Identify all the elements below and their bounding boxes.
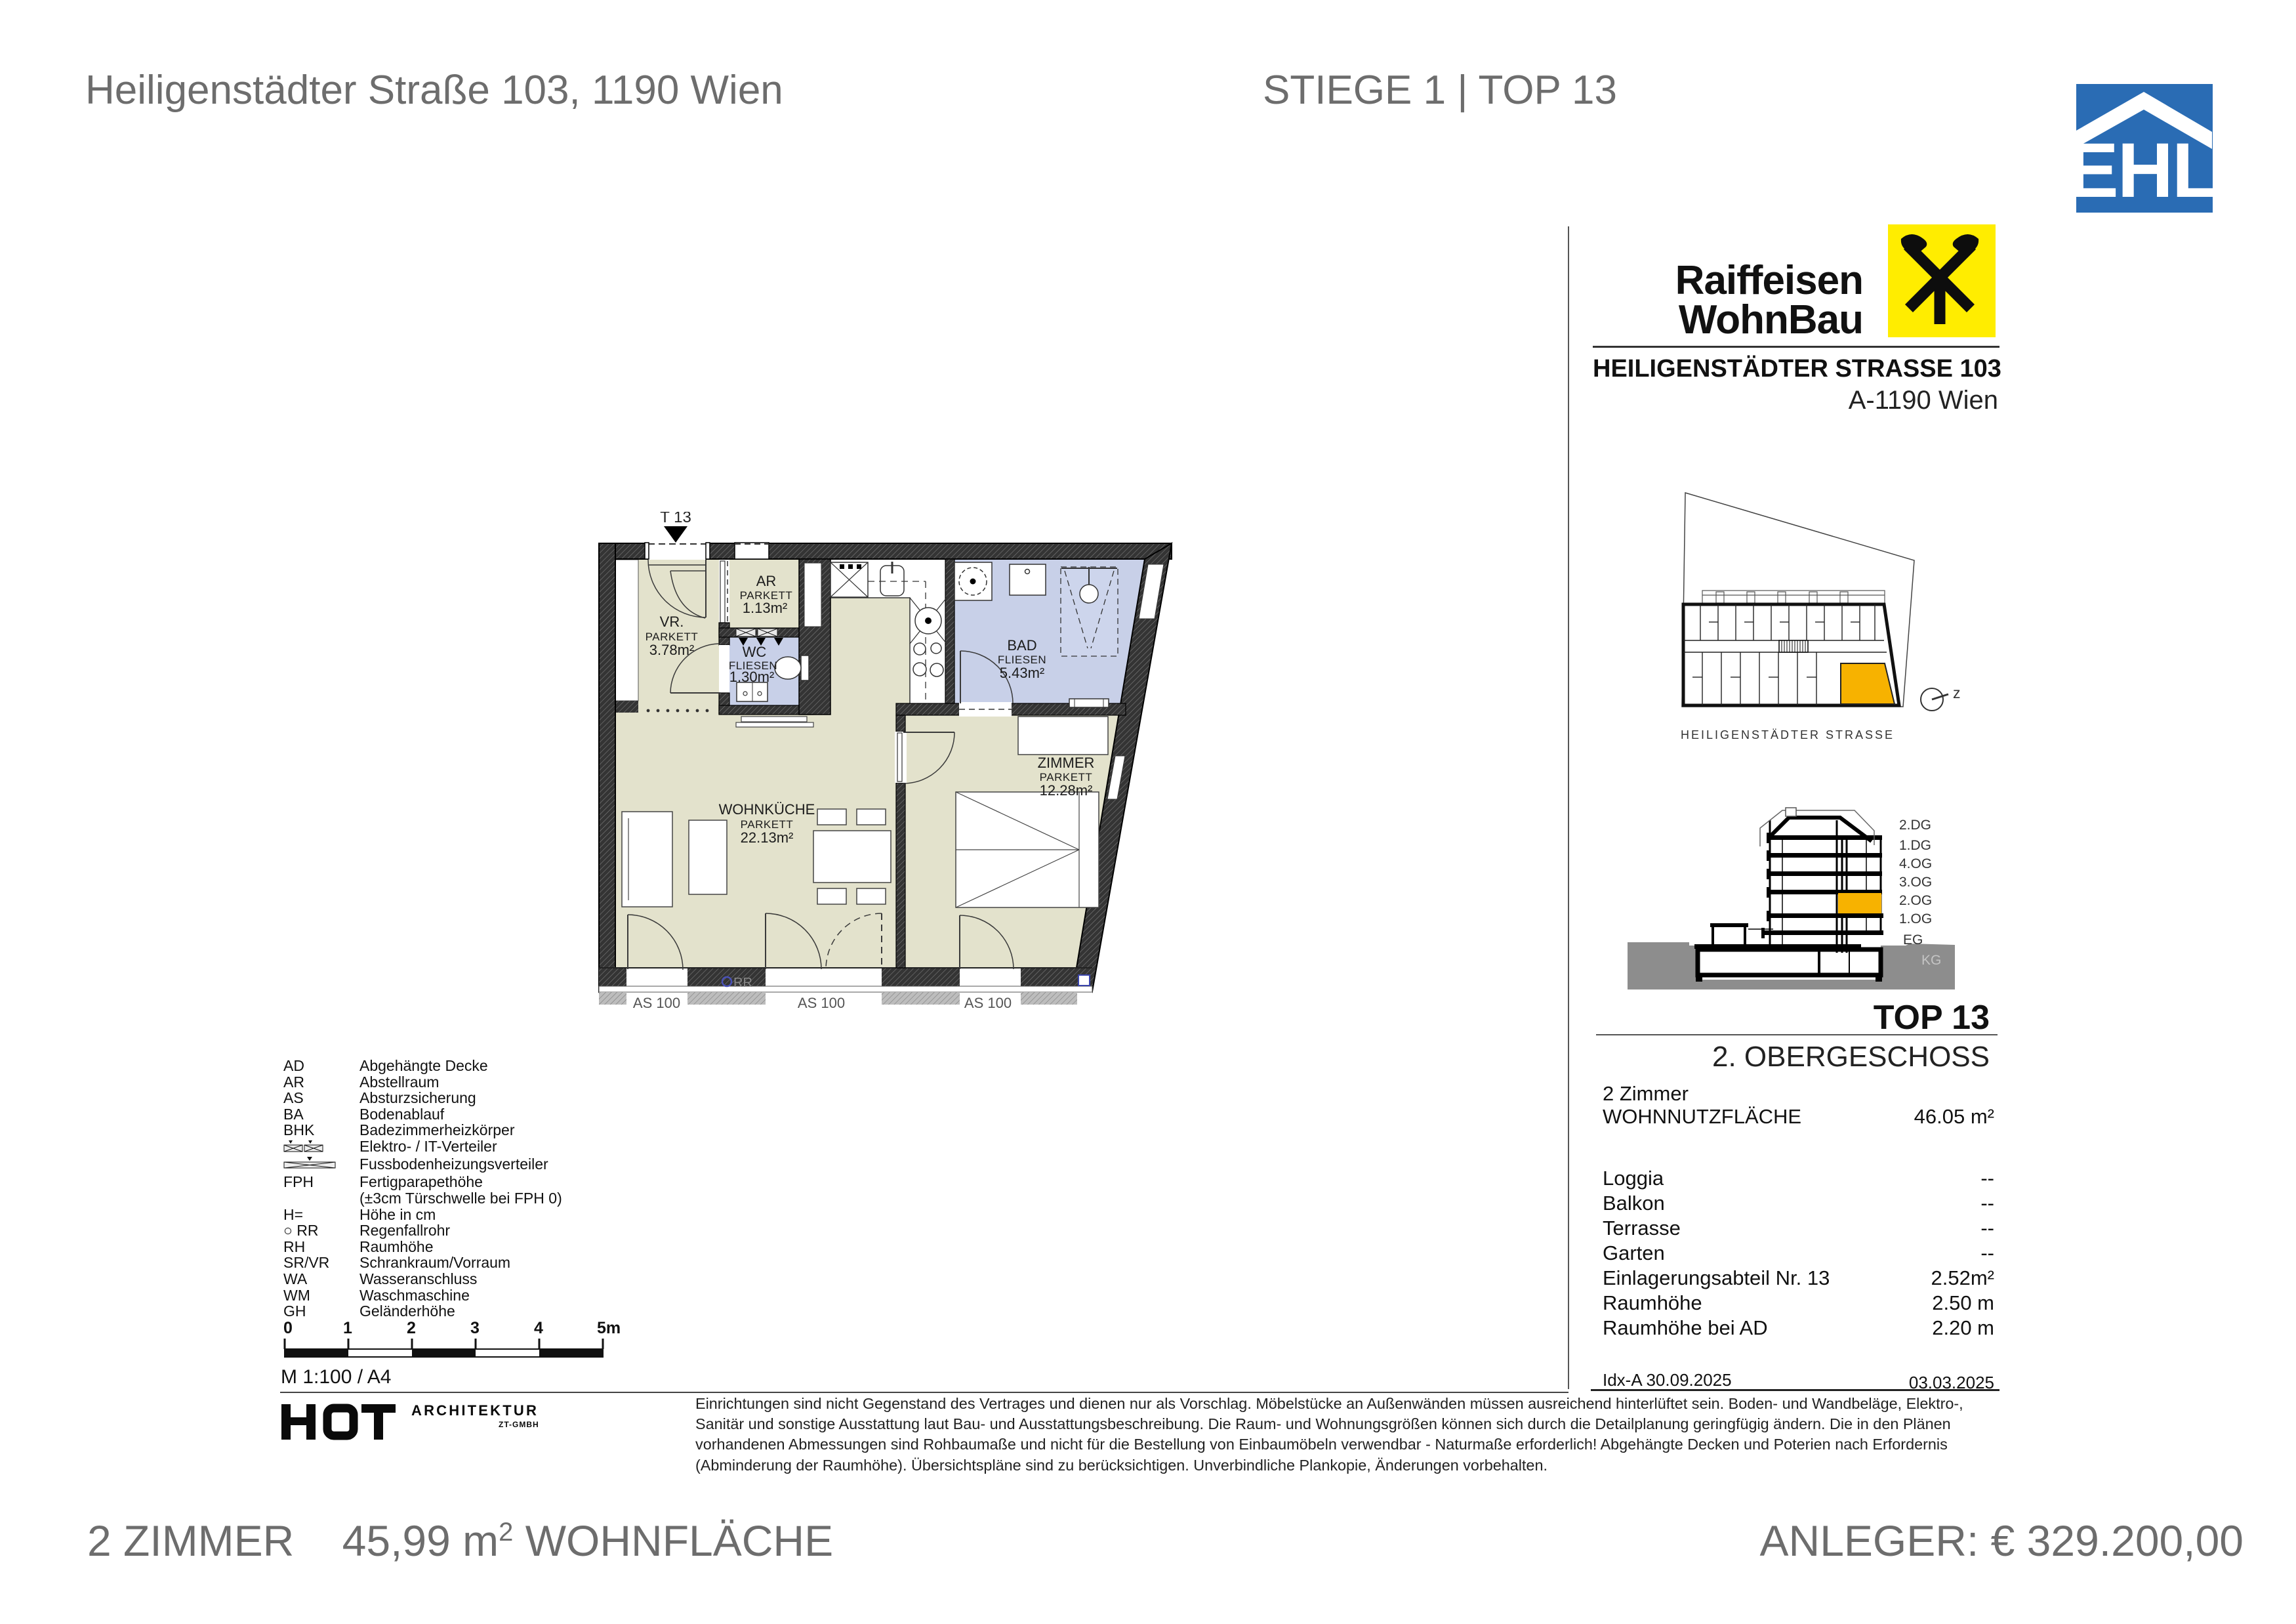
svg-text:BAD: BAD bbox=[1007, 637, 1036, 654]
svg-text:ZT-GMBH: ZT-GMBH bbox=[499, 1420, 539, 1429]
svg-text:AS 100: AS 100 bbox=[633, 995, 680, 1011]
svg-text:12.28m²: 12.28m² bbox=[1040, 782, 1093, 799]
svg-text:2.OG: 2.OG bbox=[1899, 893, 1932, 908]
svg-text:HEILIGENSTÄDTER STRASSE: HEILIGENSTÄDTER STRASSE bbox=[1681, 728, 1895, 741]
svg-text:z: z bbox=[1953, 684, 1961, 701]
svg-text:5.43m²: 5.43m² bbox=[1000, 665, 1044, 681]
svg-text:KG: KG bbox=[1921, 953, 1941, 968]
svg-text:WOHNKÜCHE: WOHNKÜCHE bbox=[719, 801, 815, 818]
svg-text:ZIMMER: ZIMMER bbox=[1038, 755, 1095, 771]
svg-text:3.OG: 3.OG bbox=[1899, 875, 1932, 890]
svg-text:4.OG: 4.OG bbox=[1899, 856, 1932, 871]
svg-text:AS 100: AS 100 bbox=[798, 995, 845, 1011]
svg-text:1.30m²: 1.30m² bbox=[729, 669, 774, 685]
svg-text:ARCHITEKTUR: ARCHITEKTUR bbox=[411, 1403, 539, 1419]
svg-text:22.13m²: 22.13m² bbox=[741, 829, 794, 846]
svg-text:1.DG: 1.DG bbox=[1899, 838, 1931, 853]
svg-text:AS 100: AS 100 bbox=[964, 995, 1012, 1011]
svg-text:1.13m²: 1.13m² bbox=[743, 600, 787, 616]
svg-text:2.DG: 2.DG bbox=[1899, 818, 1931, 833]
svg-text:0: 0 bbox=[283, 1320, 293, 1337]
svg-text:1: 1 bbox=[343, 1320, 352, 1337]
svg-text:1.OG: 1.OG bbox=[1899, 911, 1932, 927]
svg-text:AR: AR bbox=[756, 573, 777, 589]
svg-text:RR: RR bbox=[733, 976, 752, 990]
svg-text:EHL: EHL bbox=[2076, 127, 2213, 213]
svg-text:3: 3 bbox=[470, 1320, 480, 1337]
svg-text:T 13: T 13 bbox=[660, 512, 691, 526]
svg-text:5m: 5m bbox=[597, 1320, 621, 1337]
svg-text:2: 2 bbox=[407, 1320, 416, 1337]
svg-text:EG: EG bbox=[1903, 932, 1923, 947]
svg-text:WC: WC bbox=[743, 644, 767, 660]
svg-text:VR.: VR. bbox=[660, 614, 684, 630]
svg-text:4: 4 bbox=[534, 1320, 543, 1337]
svg-text:3.78m²: 3.78m² bbox=[649, 642, 694, 658]
